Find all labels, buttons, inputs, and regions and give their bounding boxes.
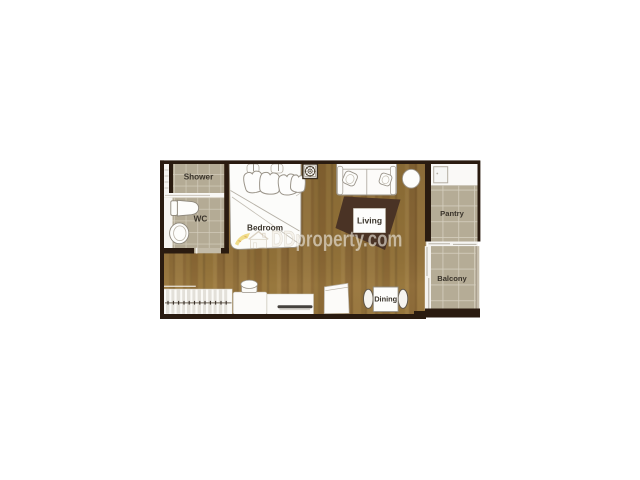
svg-text:Living: Living [357,216,382,226]
svg-text:Balcony: Balcony [437,274,467,283]
svg-text:Shower: Shower [184,173,214,182]
svg-text:WC: WC [194,215,208,224]
svg-text:Pantry: Pantry [440,209,464,218]
svg-text:Dining: Dining [374,295,397,304]
svg-text:DDproperty.com: DDproperty.com [271,227,403,252]
